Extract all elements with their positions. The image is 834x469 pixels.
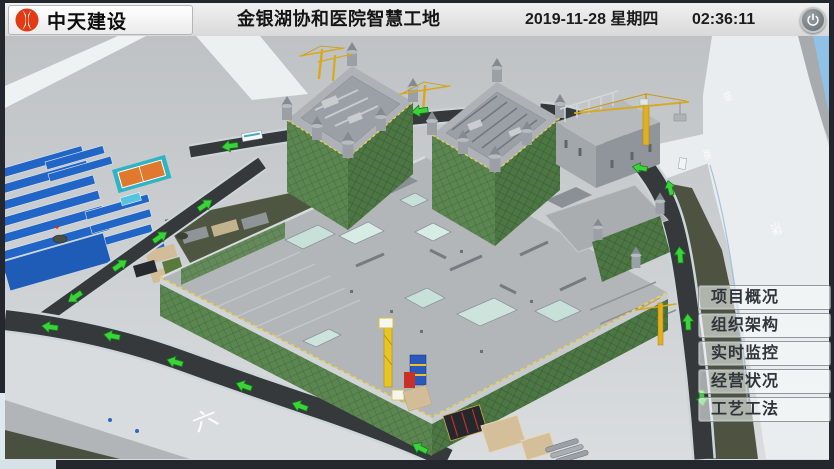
- company-name: 中天建设: [47, 7, 127, 34]
- worker: [108, 418, 112, 422]
- page-title: 金银湖协和医院智慧工地: [237, 3, 441, 36]
- pond: [53, 235, 67, 243]
- side-menu: 项目概况 组织架构 实时监控 经营状况 工艺工法: [698, 285, 831, 425]
- flag: [55, 225, 58, 228]
- company-logo-icon: [14, 7, 40, 33]
- worker: [135, 429, 139, 433]
- company-logo: 中天建设: [8, 5, 193, 35]
- menu-item-org-structure[interactable]: 组织架构: [698, 313, 831, 338]
- menu-item-realtime-monitoring[interactable]: 实时监控: [698, 341, 831, 366]
- header-date: 2019-11-28 星期四: [525, 3, 658, 36]
- menu-item-construction-method[interactable]: 工艺工法: [698, 397, 831, 422]
- bezel-highlight: [0, 460, 56, 469]
- power-button[interactable]: [800, 7, 826, 33]
- menu-item-business-status[interactable]: 经营状况: [698, 369, 831, 394]
- bezel-highlight: [0, 393, 5, 460]
- header-bar: 中天建设 金银湖协和医院智慧工地 2019-11-28 星期四 02:36:11: [5, 3, 829, 37]
- menu-item-project-overview[interactable]: 项目概况: [698, 285, 831, 310]
- van: [678, 158, 686, 170]
- header-time: 02:36:11: [692, 3, 755, 36]
- smart-site-dashboard: 中天建设 金银湖协和医院智慧工地 2019-11-28 星期四 02:36:11: [0, 0, 834, 469]
- power-icon: [805, 12, 821, 28]
